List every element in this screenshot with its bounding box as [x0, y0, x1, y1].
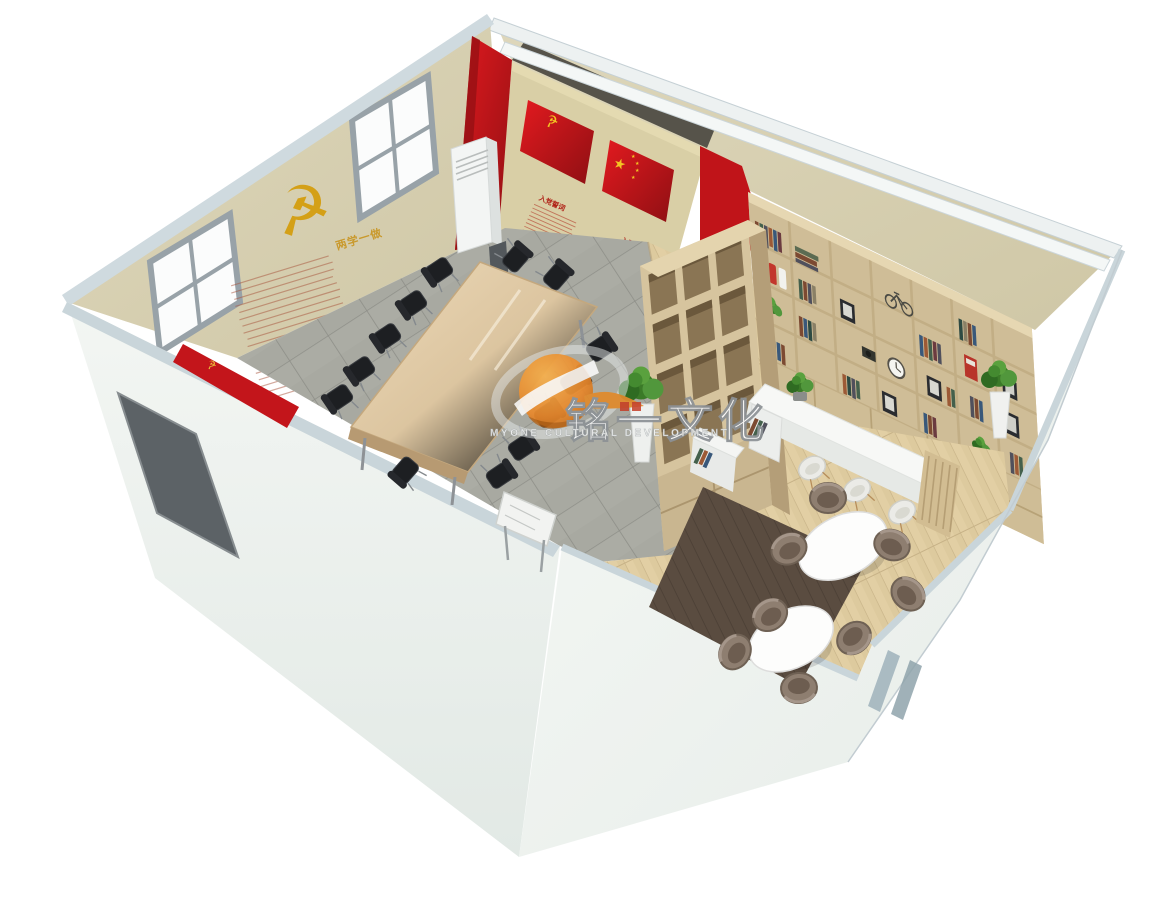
- national-flag-small-star-icon: ★: [635, 161, 640, 167]
- brand-name-cn: 铭一文化: [565, 394, 769, 448]
- room-render: ☭ 两学一做 ☭ ★ ★ ★ ★ ★ 入党誓词: [0, 0, 1166, 907]
- desk-plant-pot: [793, 392, 807, 401]
- national-flag-small-star-icon: ★: [635, 168, 640, 174]
- lounge-chair: [810, 483, 846, 513]
- brand-name-en: MYONE CULTURAL DEVELOPMENT: [490, 428, 729, 439]
- brand-seal-mark: [632, 402, 641, 411]
- render-canvas: ☭ 两学一做 ☭ ★ ★ ★ ★ ★ 入党誓词: [0, 0, 1166, 907]
- national-flag-small-star-icon: ★: [631, 154, 636, 160]
- plant-pot: [990, 392, 1010, 438]
- brand-seal-mark: [620, 402, 629, 411]
- national-flag-small-star-icon: ★: [631, 175, 636, 181]
- ac-front: [451, 137, 492, 253]
- entry-flag-emblem-icon: ☭: [205, 358, 218, 373]
